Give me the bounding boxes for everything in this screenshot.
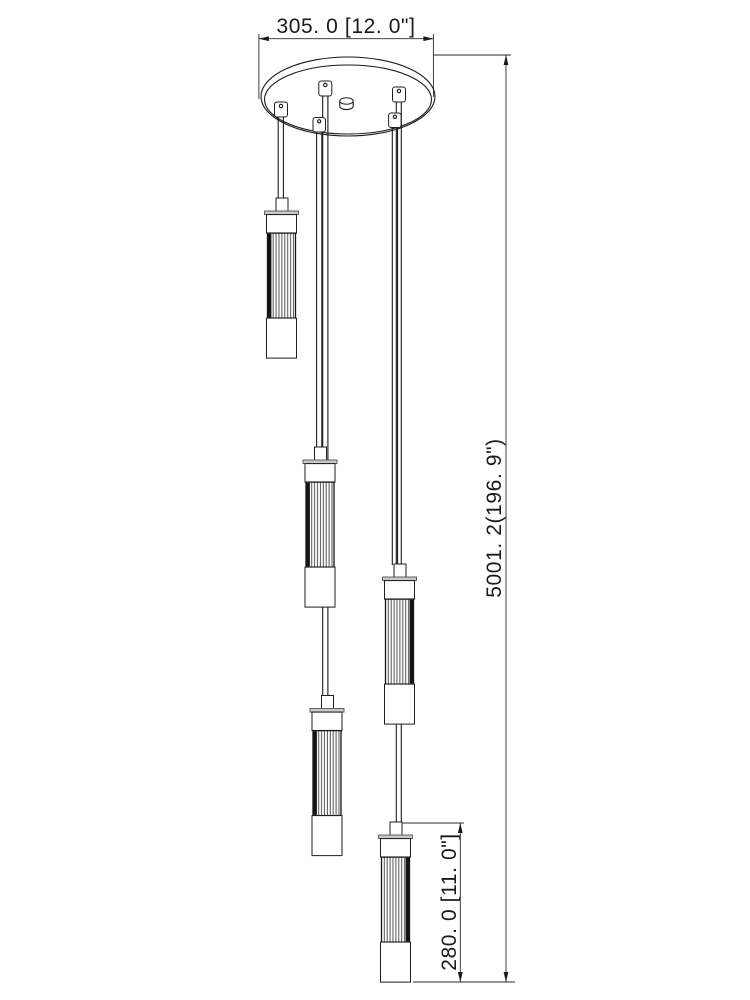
pendant-2 [303,447,337,607]
dimension-pendant-length: 280. 0 [11. 0"] [402,823,464,982]
pendant-4 [310,696,344,856]
pendant-3 [383,564,417,724]
cord-grip [319,81,332,96]
cord-grip [389,113,402,128]
canopy-center-knockout [340,98,353,110]
pendant-1 [265,198,299,358]
cord-grip [275,102,288,117]
cord-grip [393,87,406,102]
pendants [265,198,417,982]
cord-1 [278,112,283,199]
canopy-outer-rim [261,57,435,136]
cord-2 [317,128,322,448]
dimension-label-pendant-length: 280. 0 [11. 0"] [438,833,461,971]
dimension-label-canopy-width: 305. 0 [12. 0"] [276,15,415,38]
cord-grip [313,118,326,133]
arrowhead [504,55,509,65]
dimension-label-overall-height: 5001. 2(196. 9") [483,438,506,598]
arrowhead [423,36,433,41]
arrowhead [458,823,463,833]
ceiling-canopy [261,57,435,136]
arrowhead [504,972,509,982]
dimension-overall-height: 5001. 2(196. 9") [413,55,515,982]
arrowhead [259,36,269,41]
pendant-fixture-dimension-drawing: 305. 0 [12. 0"] 5001. 2(196. 9") 280. 0 … [0,0,750,1000]
arrowhead [458,972,463,982]
drawing-canvas: 305. 0 [12. 0"] 5001. 2(196. 9") 280. 0 … [0,0,750,1000]
pendant-5 [379,822,413,982]
